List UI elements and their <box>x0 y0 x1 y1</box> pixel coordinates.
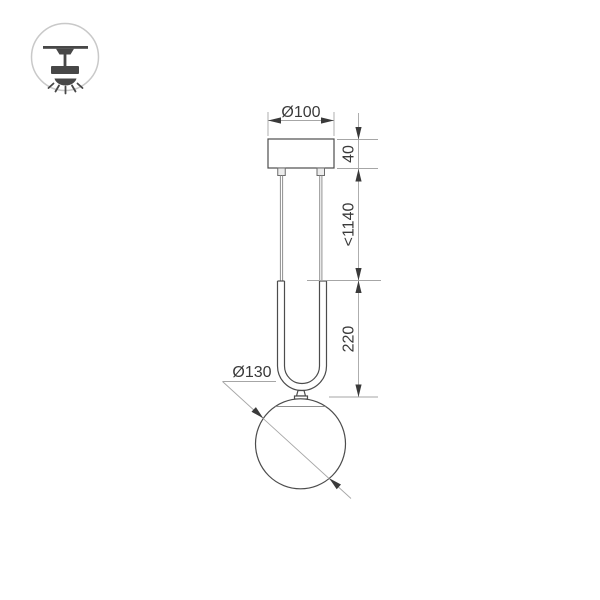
cable-gripper-left <box>278 168 286 176</box>
arrowhead-frame-bottom <box>355 385 361 398</box>
suspension-cable-right <box>320 176 322 282</box>
arrowhead-right <box>321 117 334 123</box>
u-frame <box>278 281 327 391</box>
arrowhead-cable-end <box>355 268 361 281</box>
canopy-diameter-label: Ø100 <box>281 104 320 121</box>
badge-lamp-body <box>51 66 79 74</box>
canopy-height-label: 40 <box>341 145 358 163</box>
cable-gripper-right <box>317 168 325 176</box>
pendant-fixture <box>256 139 346 489</box>
glass-sphere <box>256 399 346 489</box>
badge-stem <box>64 54 67 67</box>
pendant-lamp-dimension-drawing: Ø100 40 <1140 220 Ø130 <box>0 0 600 600</box>
sphere-holder <box>295 391 308 400</box>
arrowhead-canopy-top <box>355 127 361 140</box>
arrowhead-sphere-upper <box>252 407 264 418</box>
suspension-length-label: <1140 <box>341 203 358 247</box>
technical-drawing-canvas: Ø100 40 <1140 220 Ø130 <box>0 0 600 600</box>
badge-ceiling-line <box>43 46 88 49</box>
dimension-canopy-diameter: Ø100 <box>268 104 334 136</box>
arrowhead-left <box>268 117 281 123</box>
ceiling-pendant-icon <box>32 24 99 94</box>
arrowhead-frame-top <box>355 281 361 294</box>
sphere-diameter-label: Ø130 <box>232 364 271 381</box>
suspension-cable-left <box>280 176 282 282</box>
arrowhead-canopy-bottom <box>355 169 361 182</box>
frame-height-label: 220 <box>341 326 358 353</box>
canopy-outline <box>268 139 334 168</box>
